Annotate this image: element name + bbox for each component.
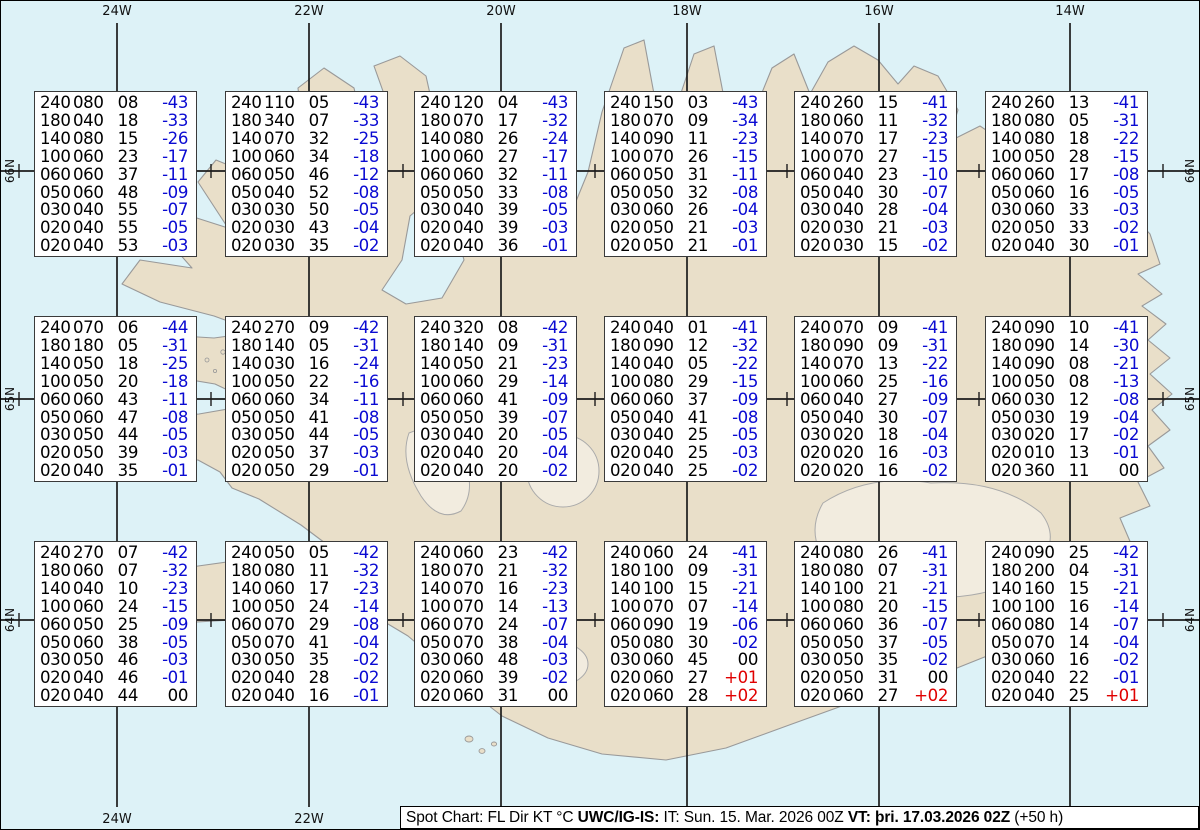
spot-spd-value: 06 [107,319,138,337]
spot-spd-value: 35 [298,237,329,255]
spot-dir-value: 050 [453,355,487,373]
spot-spd-value: 41 [677,409,708,427]
spot-tmp-value: +01 [1089,687,1139,705]
spot-tmp-value: -01 [708,237,758,255]
spot-spd-value: 21 [487,355,518,373]
latitude-label: 64N [1184,608,1196,632]
spot-tmp-value: -01 [1089,669,1139,687]
spot-fl-value: 140 [800,130,833,148]
spot-fl-value: 180 [420,112,453,130]
spot-fl-value: 240 [800,94,833,112]
spot-row: 06006036-07 [800,616,948,634]
spot-tmp-value: -02 [329,651,379,669]
spot-fl-value: 020 [991,669,1024,687]
spot-fl-value: 020 [610,444,643,462]
spot-dir-value: 090 [1024,355,1058,373]
spot-tmp-value: -42 [329,319,379,337]
spot-dir-value: 060 [453,651,487,669]
spot-row: 05005037-05 [800,634,948,652]
spot-spd-value: 03 [677,94,708,112]
spot-fl-value: 180 [991,337,1024,355]
spot-row: 10006027-17 [420,148,568,166]
spot-row: 03002017-02 [991,426,1139,444]
spot-dir-value: 070 [643,148,677,166]
spot-dir-value: 020 [1024,426,1058,444]
spot-fl-value: 050 [610,634,643,652]
spot-tmp-value: -18 [138,373,188,391]
spot-row: 24007009-41 [800,319,948,337]
spot-tmp-value: -05 [708,426,758,444]
spot-spd-value: 05 [298,544,329,562]
spot-spd-value: 44 [107,426,138,444]
spot-dir-value: 070 [264,616,298,634]
spot-row: 14016015-21 [991,580,1139,598]
spot-row: 18014009-31 [420,337,568,355]
spot-tmp-value: -14 [518,373,568,391]
spot-tmp-value: -15 [708,373,758,391]
spot-spd-value: 08 [487,319,518,337]
spot-tmp-value: -02 [898,462,948,480]
spot-dir-value: 050 [643,237,677,255]
spot-fl-value: 240 [40,94,73,112]
spot-fl-value: 020 [991,237,1024,255]
spot-spd-value: 28 [677,687,708,705]
spot-row: 02003015-02 [800,237,948,255]
spot-row: 06005046-12 [231,166,379,184]
spot-dir-value: 020 [833,444,867,462]
spot-dir-value: 050 [73,616,107,634]
spot-spd-value: 25 [1058,687,1089,705]
spot-fl-value: 100 [231,598,264,616]
spot-spd-value: 09 [677,562,708,580]
spot-row: 03004020-05 [420,426,568,444]
spot-dir-value: 060 [73,166,107,184]
spot-tmp-value: -32 [329,562,379,580]
spot-dir-value: 050 [264,544,298,562]
spot-fl-value: 050 [420,184,453,202]
spot-tmp-value: -01 [138,462,188,480]
spot-tmp-value: -02 [518,462,568,480]
spot-fl-value: 240 [991,94,1024,112]
spot-fl-value: 030 [991,651,1024,669]
spot-tmp-value: -22 [1089,130,1139,148]
spot-spd-value: 11 [677,130,708,148]
spot-fl-value: 180 [231,112,264,130]
spot-fl-value: 020 [40,444,73,462]
spot-fl-value: 050 [991,184,1024,202]
spot-data-box: 24008026-4118008007-3114010021-211000802… [794,541,957,707]
spot-dir-value: 050 [833,651,867,669]
spot-fl-value: 030 [420,201,453,219]
spot-fl-value: 020 [991,462,1024,480]
vestmannaeyjar-islands [465,736,497,753]
caption-segment: (+50 h) [1010,809,1063,827]
spot-tmp-value: -07 [898,616,948,634]
spot-row: 14007016-23 [420,580,568,598]
spot-fl-value: 020 [40,237,73,255]
spot-fl-value: 060 [231,616,264,634]
spot-row: 14008026-24 [420,130,568,148]
spot-dir-value: 080 [1024,112,1058,130]
spot-row: 10010016-14 [991,598,1139,616]
spot-spd-value: 24 [298,598,329,616]
spot-tmp-value: -21 [898,580,948,598]
spot-tmp-value: -02 [1089,426,1139,444]
spot-tmp-value: -15 [1089,148,1139,166]
spot-dir-value: 050 [643,219,677,237]
spot-tmp-value: -03 [898,219,948,237]
spot-dir-value: 060 [453,687,487,705]
spot-tmp-value: -02 [329,237,379,255]
spot-dir-value: 080 [1024,130,1058,148]
spot-fl-value: 100 [800,148,833,166]
spot-spd-value: 29 [677,373,708,391]
spot-data-box: 24015003-4318007009-3414009011-231000702… [604,91,767,257]
spot-dir-value: 050 [1024,219,1058,237]
spot-fl-value: 060 [40,616,73,634]
spot-dir-value: 090 [1024,319,1058,337]
spot-row: 10005024-14 [231,598,379,616]
spot-spd-value: 46 [298,166,329,184]
spot-fl-value: 240 [40,319,73,337]
spot-row: 03004028-04 [800,201,948,219]
spot-dir-value: 070 [453,616,487,634]
spot-fl-value: 100 [40,598,73,616]
spot-spd-value: 18 [107,112,138,130]
spot-tmp-value: -03 [518,219,568,237]
spot-fl-value: 240 [231,319,264,337]
spot-row: 18020004-31 [991,562,1139,580]
spot-fl-value: 020 [991,444,1024,462]
spot-spd-value: 30 [1058,237,1089,255]
spot-spd-value: 08 [1058,355,1089,373]
spot-dir-value: 050 [643,184,677,202]
longitude-label: 18W [672,5,701,18]
spot-spd-value: 09 [867,319,898,337]
spot-tmp-value: -18 [329,148,379,166]
spot-dir-value: 060 [1024,651,1058,669]
spot-tmp-value: -22 [708,355,758,373]
spot-tmp-value: -02 [708,634,758,652]
spot-spd-value: 22 [1058,669,1089,687]
spot-fl-value: 020 [231,444,264,462]
spot-dir-value: 030 [264,355,298,373]
spot-dir-value: 070 [264,130,298,148]
spot-spd-value: 09 [867,337,898,355]
spot-dir-value: 090 [643,130,677,148]
spot-fl-value: 100 [991,598,1024,616]
spot-tmp-value: -05 [138,219,188,237]
spot-spd-value: 08 [107,94,138,112]
spot-dir-value: 040 [73,219,107,237]
spot-row: 02005037-03 [231,444,379,462]
spot-spd-value: 17 [867,130,898,148]
spot-row: 05004030-07 [800,409,948,427]
spot-row: 10007027-15 [800,148,948,166]
spot-fl-value: 100 [420,373,453,391]
spot-fl-value: 060 [40,166,73,184]
spot-spd-value: 39 [107,444,138,462]
spot-spd-value: 48 [487,651,518,669]
spot-tmp-value: -08 [329,409,379,427]
spot-dir-value: 080 [833,562,867,580]
spot-tmp-value: -03 [138,237,188,255]
spot-spd-value: 25 [677,426,708,444]
spot-row: 05005039-07 [420,409,568,427]
spot-fl-value: 100 [420,598,453,616]
spot-fl-value: 180 [40,337,73,355]
spot-tmp-value: 00 [708,651,758,669]
spot-fl-value: 050 [800,634,833,652]
spot-dir-value: 340 [264,112,298,130]
spot-dir-value: 040 [453,219,487,237]
spot-row: 24007006-44 [40,319,188,337]
spot-fl-value: 020 [40,462,73,480]
spot-dir-value: 060 [833,373,867,391]
spot-dir-value: 060 [453,166,487,184]
spot-dir-value: 050 [833,634,867,652]
spot-row: 14004010-23 [40,580,188,598]
spot-row: 14009011-23 [610,130,758,148]
spot-fl-value: 020 [231,687,264,705]
spot-row: 02006027+01 [610,669,758,687]
spot-row: 10006023-17 [40,148,188,166]
spot-tmp-value: -23 [518,580,568,598]
spot-spd-value: 39 [487,219,518,237]
spot-spd-value: 17 [1058,426,1089,444]
spot-dir-value: 060 [73,562,107,580]
spot-fl-value: 140 [991,355,1024,373]
spot-fl-value: 050 [231,184,264,202]
spot-row: 06006037-09 [610,391,758,409]
spot-tmp-value: -33 [329,112,379,130]
spot-tmp-value: -23 [708,130,758,148]
spot-tmp-value: -05 [518,201,568,219]
spot-dir-value: 070 [833,319,867,337]
spot-dir-value: 060 [73,148,107,166]
spot-data-box: 24006024-4118010009-3114010015-211000700… [604,541,767,707]
spot-fl-value: 020 [420,237,453,255]
spot-tmp-value: -13 [1089,373,1139,391]
spot-dir-value: 100 [643,562,677,580]
spot-tmp-value: -04 [329,219,379,237]
spot-fl-value: 140 [40,580,73,598]
spot-row: 05006048-09 [40,184,188,202]
spot-tmp-value: 00 [898,669,948,687]
spot-fl-value: 240 [991,544,1024,562]
spot-row: 10006024-15 [40,598,188,616]
spot-fl-value: 050 [420,634,453,652]
spot-row: 14007032-25 [231,130,379,148]
spot-row: 02004039-03 [420,219,568,237]
spot-data-box: 24008008-4318004018-3314008015-261000602… [34,91,197,257]
spot-dir-value: 120 [453,94,487,112]
spot-data-box: 24026013-4118008005-3114008018-221000502… [985,91,1148,257]
spot-spd-value: 28 [298,669,329,687]
spot-fl-value: 100 [40,373,73,391]
spot-dir-value: 090 [643,337,677,355]
spot-dir-value: 080 [833,598,867,616]
spot-chart-canvas: 24W24W22W22W20W20W18W18W16W16W14W14W66N6… [0,0,1200,830]
spot-tmp-value: -06 [708,616,758,634]
spot-dir-value: 090 [833,337,867,355]
spot-fl-value: 100 [610,148,643,166]
spot-dir-value: 080 [833,544,867,562]
spot-data-box: 24027009-4218014005-3114003016-241000502… [225,316,388,482]
spot-fl-value: 240 [231,94,264,112]
spot-fl-value: 140 [231,580,264,598]
spot-tmp-value: -01 [138,669,188,687]
spot-spd-value: 44 [107,687,138,705]
spot-tmp-value: -26 [138,130,188,148]
spot-dir-value: 100 [833,580,867,598]
spot-data-box: 24009010-4118009014-3014009008-211000500… [985,316,1148,482]
spot-spd-value: 47 [107,409,138,427]
spot-row: 18007009-34 [610,112,758,130]
spot-spd-value: 24 [487,616,518,634]
spot-tmp-value: -14 [1089,598,1139,616]
spot-spd-value: 08 [1058,373,1089,391]
spot-dir-value: 260 [1024,94,1058,112]
spot-tmp-value: 00 [1089,462,1139,480]
spot-fl-value: 050 [800,409,833,427]
spot-row: 14006017-23 [231,580,379,598]
spot-data-box: 24026015-4118006011-3214007017-231000702… [794,91,957,257]
spot-fl-value: 020 [40,687,73,705]
spot-fl-value: 100 [991,148,1024,166]
spot-tmp-value: -08 [518,184,568,202]
spot-fl-value: 060 [420,166,453,184]
spot-fl-value: 100 [420,148,453,166]
spot-tmp-value: -32 [518,112,568,130]
spot-fl-value: 020 [231,462,264,480]
spot-spd-value: 07 [107,544,138,562]
longitude-label: 24W [102,5,131,18]
spot-row: 10007014-13 [420,598,568,616]
spot-row: 24026015-41 [800,94,948,112]
spot-dir-value: 070 [833,130,867,148]
spot-row: 18018005-31 [40,337,188,355]
spot-fl-value: 050 [231,634,264,652]
spot-fl-value: 060 [800,166,833,184]
spot-data-box: 24009025-4218020004-3114016015-211001001… [985,541,1148,707]
spot-fl-value: 020 [420,687,453,705]
spot-tmp-value: -23 [138,580,188,598]
spot-tmp-value: -42 [1089,544,1139,562]
spot-dir-value: 050 [73,651,107,669]
spot-spd-value: 10 [107,580,138,598]
spot-fl-value: 180 [610,337,643,355]
spot-row: 02005021-01 [610,237,758,255]
spot-tmp-value: -02 [898,651,948,669]
spot-tmp-value: -23 [898,130,948,148]
spot-spd-value: 16 [1058,184,1089,202]
spot-tmp-value: -41 [898,319,948,337]
spot-row: 05005032-08 [610,184,758,202]
spot-row: 06004023-10 [800,166,948,184]
spot-fl-value: 180 [800,337,833,355]
spot-row: 05004030-07 [800,184,948,202]
spot-tmp-value: -02 [708,462,758,480]
spot-row: 02004030-01 [991,237,1139,255]
spot-dir-value: 060 [73,409,107,427]
spot-spd-value: 27 [867,391,898,409]
spot-fl-value: 020 [800,444,833,462]
spot-spd-value: 35 [107,462,138,480]
spot-row: 05006016-05 [991,184,1139,202]
spot-dir-value: 070 [264,634,298,652]
spot-fl-value: 060 [231,391,264,409]
spot-data-box: 24011005-4318034007-3314007032-251000603… [225,91,388,257]
spot-fl-value: 180 [610,112,643,130]
spot-spd-value: 05 [677,355,708,373]
spot-spd-value: 20 [867,598,898,616]
spot-dir-value: 040 [643,319,677,337]
spot-dir-value: 360 [1024,462,1058,480]
spot-dir-value: 040 [833,409,867,427]
spot-row: 18009009-31 [800,337,948,355]
spot-dir-value: 060 [643,391,677,409]
spot-fl-value: 240 [800,544,833,562]
spot-tmp-value: -32 [898,112,948,130]
spot-fl-value: 100 [800,373,833,391]
spot-row: 24006023-42 [420,544,568,562]
spot-tmp-value: -05 [329,201,379,219]
spot-dir-value: 010 [1024,444,1058,462]
spot-tmp-value: -41 [1089,319,1139,337]
spot-spd-value: 09 [677,112,708,130]
spot-tmp-value: -07 [1089,616,1139,634]
spot-spd-value: 27 [867,687,898,705]
spot-spd-value: 44 [298,426,329,444]
spot-row: 24032008-42 [420,319,568,337]
latitude-label: 64N [4,608,16,632]
spot-fl-value: 020 [420,444,453,462]
spot-row: 03005046-03 [40,651,188,669]
spot-dir-value: 040 [643,409,677,427]
spot-spd-value: 55 [107,201,138,219]
spot-row: 06008014-07 [991,616,1139,634]
spot-row: 18008011-32 [231,562,379,580]
spot-spd-value: 19 [1058,409,1089,427]
spot-row: 10007026-15 [610,148,758,166]
spot-fl-value: 030 [800,426,833,444]
spot-tmp-value: -11 [138,166,188,184]
spot-fl-value: 180 [610,562,643,580]
spot-tmp-value: -05 [138,426,188,444]
spot-fl-value: 060 [40,391,73,409]
spot-dir-value: 100 [1024,598,1058,616]
spot-spd-value: 30 [677,634,708,652]
spot-dir-value: 090 [1024,337,1058,355]
spot-row: 02003043-04 [231,219,379,237]
spot-row: 02005033-02 [991,219,1139,237]
spot-spd-value: 04 [487,94,518,112]
spot-row: 24008008-43 [40,94,188,112]
spot-fl-value: 060 [610,391,643,409]
spot-dir-value: 060 [1024,166,1058,184]
spot-fl-value: 020 [800,219,833,237]
spot-fl-value: 240 [231,544,264,562]
spot-spd-value: 12 [1058,391,1089,409]
spot-dir-value: 090 [643,616,677,634]
spot-spd-value: 24 [677,544,708,562]
spot-spd-value: 05 [298,94,329,112]
spot-dir-value: 050 [453,184,487,202]
spot-row: 14007017-23 [800,130,948,148]
spot-dir-value: 050 [264,166,298,184]
spot-fl-value: 180 [420,337,453,355]
